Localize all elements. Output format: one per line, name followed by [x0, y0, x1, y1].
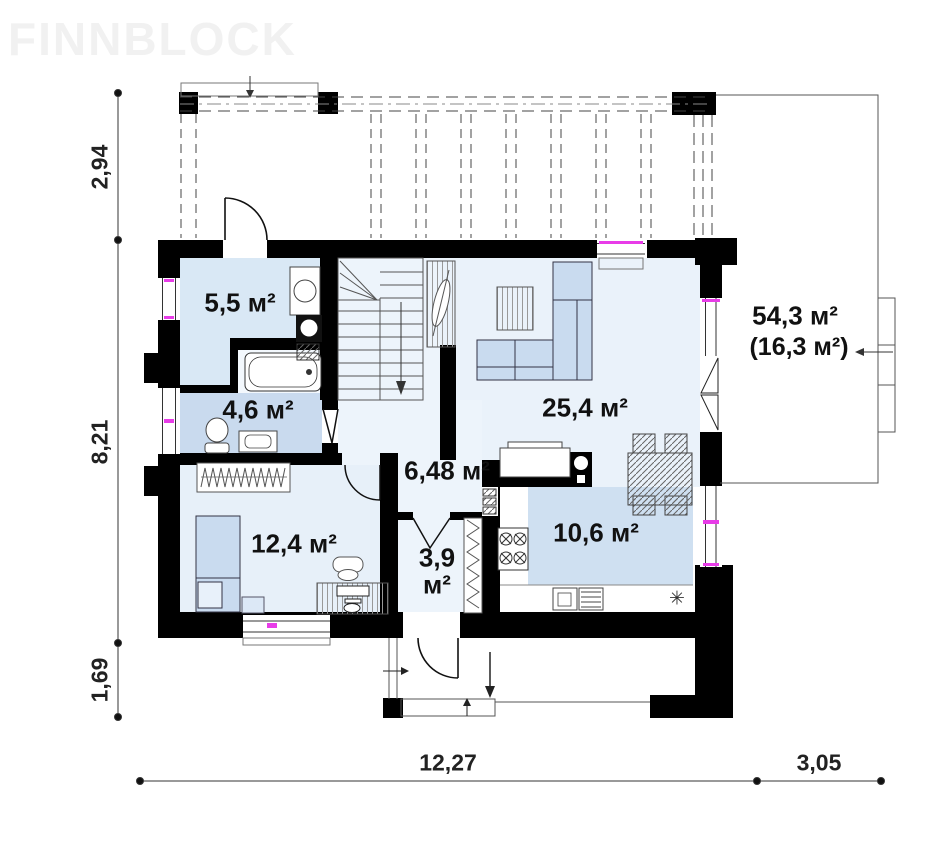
plan-linework: [0, 0, 939, 849]
wardrobe: [197, 463, 290, 492]
terrace-door: [225, 198, 267, 240]
label-terrace-area-note: (16,3 м²): [749, 334, 848, 360]
entrance-door: [418, 638, 458, 678]
label-terrace-area: 54,3 м²: [752, 302, 838, 329]
entrance-arrow: [485, 652, 495, 698]
sofa: [477, 262, 592, 380]
dining-set: [628, 434, 692, 515]
nightstand: [242, 597, 264, 613]
label-living-room-area: 25,4 м²: [542, 394, 628, 421]
desk: [317, 557, 388, 614]
floor-plan: FINNBLOCK: [0, 0, 939, 849]
bed: [196, 516, 240, 612]
fridge-snowflake-icon: ✳: [669, 588, 685, 611]
dim-left-top: 2,94: [87, 145, 114, 190]
stove-circle: [574, 456, 588, 483]
label-hallway-area: 6,48 м²: [404, 457, 490, 484]
boiler: [290, 267, 320, 315]
dimension-left: [115, 90, 122, 721]
dim-bottom-house: 12,27: [419, 750, 477, 777]
staircase: [338, 258, 423, 400]
terrace-pergola: [180, 76, 712, 238]
dim-left-bottom: 1,69: [87, 658, 114, 703]
side-terrace-outline: [716, 95, 895, 483]
french-door: [701, 358, 718, 430]
label-bedroom-area: 12,4 м²: [251, 530, 337, 557]
label-vestibule-area: 3,9 м²: [406, 545, 468, 600]
label-bathroom-area: 4,6 м²: [222, 396, 293, 423]
washing-machine: [296, 315, 322, 360]
bathroom-folding-door: [323, 409, 338, 443]
dim-left-middle: 8,21: [87, 420, 114, 465]
label-kitchen-area: 10,6 м²: [553, 519, 639, 546]
dim-bottom-terrace: 3,05: [797, 750, 842, 777]
porch-lines: [383, 638, 650, 716]
kitchen-sink-unit: [500, 585, 693, 610]
label-tech-room-area: 5,5 м²: [204, 289, 275, 316]
kitchen-hob: [498, 528, 528, 570]
coffee-table: [497, 287, 533, 330]
vent-shafts: [482, 487, 498, 516]
plant: [427, 261, 455, 347]
sink: [239, 431, 277, 452]
bedroom-door: [345, 465, 380, 500]
dimension-bottom: [137, 778, 885, 785]
tv-stand: [500, 442, 570, 477]
